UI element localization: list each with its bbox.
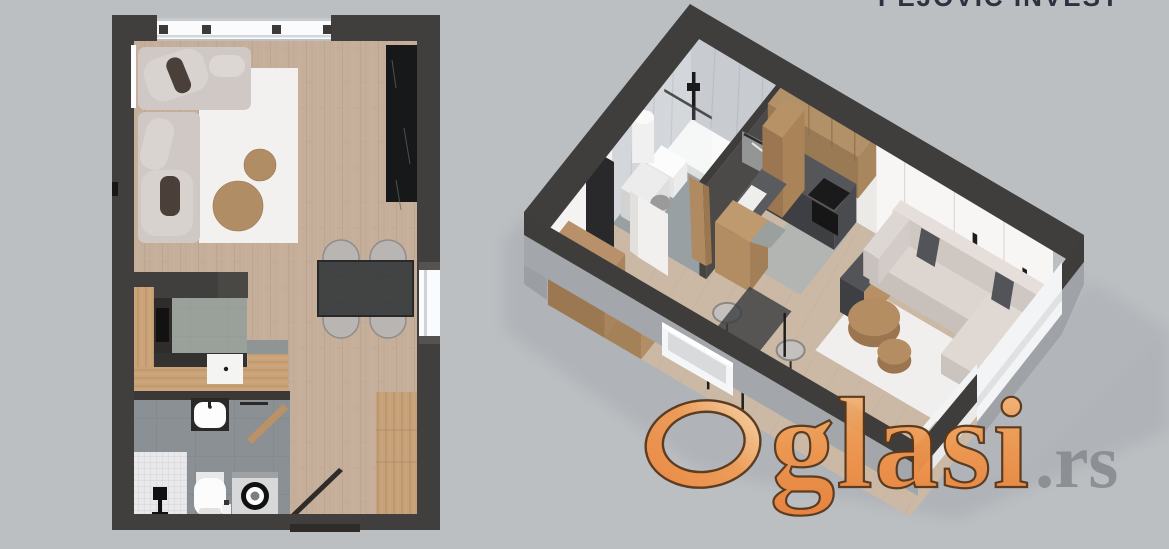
svg-text:PEJOVIĆ INVEST: PEJOVIĆ INVEST [878,0,1120,12]
svg-text:.rs: .rs [1035,418,1118,504]
svg-text:glasi: glasi [770,372,1029,516]
